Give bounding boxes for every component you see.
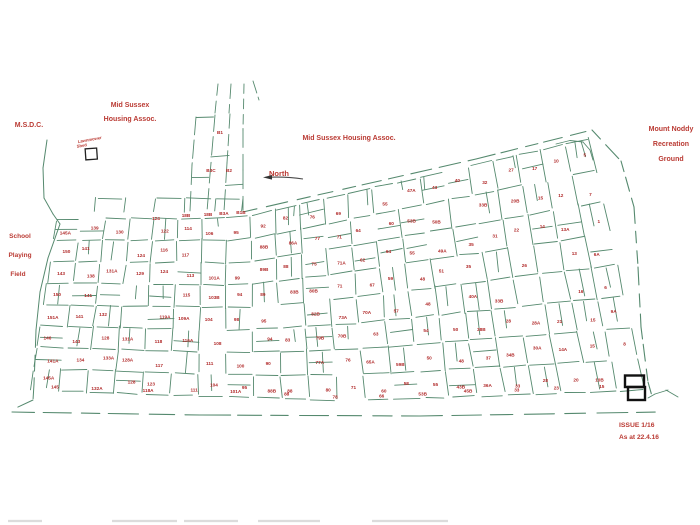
svg-text:55: 55 xyxy=(382,201,388,206)
svg-text:82B: 82B xyxy=(311,312,320,317)
svg-text:53B: 53B xyxy=(407,219,416,224)
svg-text:123: 123 xyxy=(147,382,155,387)
svg-text:28: 28 xyxy=(506,318,512,323)
svg-text:141: 141 xyxy=(82,246,90,251)
svg-text:150: 150 xyxy=(62,249,70,254)
svg-text:131A: 131A xyxy=(106,268,118,273)
svg-text:86A: 86A xyxy=(289,240,298,245)
svg-text:94: 94 xyxy=(267,337,273,342)
svg-text:58: 58 xyxy=(404,381,410,386)
svg-text:88: 88 xyxy=(284,392,290,397)
svg-text:65A: 65A xyxy=(366,360,375,365)
svg-text:B3A: B3A xyxy=(219,211,229,216)
svg-text:124: 124 xyxy=(160,269,168,274)
svg-text:115: 115 xyxy=(183,293,191,298)
svg-text:80B: 80B xyxy=(309,289,318,294)
svg-text:As at 22.4.16: As at 22.4.16 xyxy=(619,434,659,441)
svg-text:146: 146 xyxy=(43,336,51,341)
svg-text:16: 16 xyxy=(578,289,584,294)
svg-text:88B: 88B xyxy=(267,389,276,394)
svg-text:111: 111 xyxy=(190,388,198,393)
svg-text:55: 55 xyxy=(409,250,415,255)
svg-text:64: 64 xyxy=(356,228,362,233)
svg-text:95: 95 xyxy=(242,385,248,390)
svg-text:75: 75 xyxy=(311,262,317,267)
svg-text:20: 20 xyxy=(573,377,579,382)
svg-text:117: 117 xyxy=(155,363,163,368)
svg-text:School: School xyxy=(9,233,31,240)
svg-text:63: 63 xyxy=(373,332,379,337)
svg-text:Mid Sussex: Mid Sussex xyxy=(111,102,150,109)
svg-text:6A: 6A xyxy=(594,252,601,257)
svg-text:22: 22 xyxy=(514,228,520,233)
svg-text:17: 17 xyxy=(532,166,538,171)
svg-text:124: 124 xyxy=(137,253,145,258)
svg-text:40A: 40A xyxy=(469,294,478,299)
svg-text:14A: 14A xyxy=(559,347,568,352)
svg-text:134: 134 xyxy=(76,358,84,363)
svg-text:50: 50 xyxy=(427,355,433,360)
svg-text:15: 15 xyxy=(590,318,596,323)
svg-text:30A: 30A xyxy=(533,346,542,351)
svg-text:Mid Sussex Housing Assoc.: Mid Sussex Housing Assoc. xyxy=(302,135,395,142)
svg-text:13: 13 xyxy=(572,251,578,256)
svg-text:133A: 133A xyxy=(103,356,115,361)
svg-text:89: 89 xyxy=(260,292,266,297)
svg-text:83: 83 xyxy=(285,338,291,343)
svg-text:76: 76 xyxy=(310,215,316,220)
svg-text:128: 128 xyxy=(101,335,109,340)
svg-text:1: 1 xyxy=(597,219,600,224)
svg-text:88: 88 xyxy=(283,264,289,269)
svg-text:103B: 103B xyxy=(208,295,220,300)
svg-text:6: 6 xyxy=(604,285,607,290)
svg-text:15: 15 xyxy=(590,344,596,349)
svg-text:Housing Assoc.: Housing Assoc. xyxy=(104,116,157,123)
svg-text:Mount Noddy: Mount Noddy xyxy=(649,126,694,133)
svg-text:128: 128 xyxy=(128,379,136,384)
svg-text:118A: 118A xyxy=(143,388,155,393)
svg-text:101A: 101A xyxy=(230,389,242,394)
svg-text:131A: 131A xyxy=(122,336,134,341)
svg-text:108: 108 xyxy=(214,341,222,346)
svg-text:95: 95 xyxy=(261,318,267,323)
svg-text:106: 106 xyxy=(205,231,213,236)
svg-text:67: 67 xyxy=(370,283,376,288)
svg-text:23: 23 xyxy=(554,385,560,390)
svg-text:78: 78 xyxy=(332,394,338,399)
svg-text:145A: 145A xyxy=(43,375,55,380)
svg-text:38B: 38B xyxy=(477,327,486,332)
svg-text:129: 129 xyxy=(136,271,144,276)
svg-text:64: 64 xyxy=(386,249,392,254)
svg-text:34B: 34B xyxy=(506,353,515,358)
svg-text:71: 71 xyxy=(351,385,357,390)
svg-text:48: 48 xyxy=(420,276,426,281)
svg-text:60: 60 xyxy=(389,221,395,226)
svg-text:50B: 50B xyxy=(432,219,441,224)
svg-text:28: 28 xyxy=(543,378,549,383)
svg-text:Playing: Playing xyxy=(8,252,31,259)
svg-text:47A: 47A xyxy=(407,188,416,193)
svg-text:B1B: B1B xyxy=(236,210,246,215)
svg-text:15: 15 xyxy=(599,384,605,389)
svg-text:116A: 116A xyxy=(182,338,194,343)
svg-text:111: 111 xyxy=(206,361,214,366)
svg-text:130: 130 xyxy=(116,230,124,235)
svg-text:10: 10 xyxy=(554,158,560,163)
svg-text:139: 139 xyxy=(91,226,99,231)
svg-text:128A: 128A xyxy=(122,358,134,363)
svg-text:Field: Field xyxy=(10,271,25,278)
svg-text:89B: 89B xyxy=(260,267,269,272)
svg-text:B1: B1 xyxy=(217,130,223,135)
svg-text:20B: 20B xyxy=(511,199,520,204)
svg-text:ISSUE 1/16: ISSUE 1/16 xyxy=(619,422,655,429)
svg-text:124: 124 xyxy=(152,216,160,221)
svg-text:71: 71 xyxy=(337,284,343,289)
svg-text:45B: 45B xyxy=(464,388,473,393)
svg-text:77: 77 xyxy=(315,236,321,241)
svg-text:132: 132 xyxy=(99,312,107,317)
svg-text:Ground: Ground xyxy=(658,156,683,163)
svg-text:122: 122 xyxy=(161,229,169,234)
svg-text:31: 31 xyxy=(492,234,498,239)
svg-text:48: 48 xyxy=(459,358,465,363)
svg-text:59: 59 xyxy=(388,276,394,281)
svg-text:18B: 18B xyxy=(182,213,191,218)
svg-text:66: 66 xyxy=(379,394,385,399)
svg-text:132A: 132A xyxy=(91,386,103,391)
svg-text:77A: 77A xyxy=(315,360,324,365)
svg-text:51: 51 xyxy=(439,268,445,273)
svg-text:10B: 10B xyxy=(595,378,604,383)
svg-text:113: 113 xyxy=(187,273,195,278)
svg-text:150: 150 xyxy=(53,292,61,297)
svg-text:82: 82 xyxy=(283,215,289,220)
svg-text:79B: 79B xyxy=(316,336,325,341)
svg-text:28A: 28A xyxy=(532,320,541,325)
svg-text:12: 12 xyxy=(558,193,564,198)
svg-text:59B: 59B xyxy=(396,362,405,367)
svg-text:104: 104 xyxy=(205,317,213,322)
svg-text:5: 5 xyxy=(583,152,586,157)
svg-text:49A: 49A xyxy=(438,248,447,253)
svg-text:143: 143 xyxy=(57,271,65,276)
svg-text:70B: 70B xyxy=(338,334,347,339)
svg-text:18B: 18B xyxy=(204,212,213,217)
svg-text:109A: 109A xyxy=(178,316,190,321)
svg-text:14: 14 xyxy=(540,224,546,229)
svg-text:71: 71 xyxy=(337,234,343,239)
svg-text:13A: 13A xyxy=(561,227,570,232)
svg-text:92: 92 xyxy=(260,223,266,228)
svg-text:36A: 36A xyxy=(483,383,492,388)
svg-text:90: 90 xyxy=(266,361,272,366)
svg-text:151A: 151A xyxy=(47,315,59,320)
svg-text:70A: 70A xyxy=(362,310,371,315)
svg-text:104: 104 xyxy=(210,383,218,388)
svg-text:35: 35 xyxy=(468,242,474,247)
svg-text:116: 116 xyxy=(160,248,168,253)
svg-text:B2: B2 xyxy=(226,168,232,173)
svg-text:69: 69 xyxy=(336,211,342,216)
svg-text:145: 145 xyxy=(51,384,59,389)
svg-text:141: 141 xyxy=(84,293,92,298)
svg-text:57: 57 xyxy=(394,309,400,314)
svg-text:53B: 53B xyxy=(418,392,427,397)
svg-text:101A: 101A xyxy=(209,276,221,281)
svg-text:21: 21 xyxy=(557,319,563,324)
svg-text:54: 54 xyxy=(423,328,429,333)
svg-text:88B: 88B xyxy=(260,245,269,250)
svg-text:33B: 33B xyxy=(495,298,504,303)
svg-text:60: 60 xyxy=(381,388,387,393)
svg-text:80: 80 xyxy=(326,388,332,393)
svg-text:B3C: B3C xyxy=(206,168,216,173)
svg-text:62: 62 xyxy=(360,257,366,262)
svg-text:73A: 73A xyxy=(339,315,348,320)
svg-text:114: 114 xyxy=(184,226,192,231)
svg-text:83B: 83B xyxy=(290,289,299,294)
svg-text:145A: 145A xyxy=(60,231,72,236)
svg-text:Recreation: Recreation xyxy=(653,141,689,148)
svg-text:143: 143 xyxy=(72,339,80,344)
svg-text:118: 118 xyxy=(155,339,163,344)
svg-text:M.S.D.C.: M.S.D.C. xyxy=(15,122,43,129)
svg-text:15: 15 xyxy=(538,196,544,201)
svg-text:7: 7 xyxy=(589,192,592,197)
svg-text:9A: 9A xyxy=(611,309,618,314)
svg-text:141A: 141A xyxy=(47,359,59,364)
svg-text:37: 37 xyxy=(486,356,492,361)
svg-text:100: 100 xyxy=(237,364,245,369)
svg-text:76: 76 xyxy=(345,357,351,362)
svg-text:94: 94 xyxy=(237,292,243,297)
svg-text:40: 40 xyxy=(455,178,461,183)
svg-text:43: 43 xyxy=(432,185,438,190)
svg-text:33B: 33B xyxy=(479,203,488,208)
svg-text:119A: 119A xyxy=(160,315,172,320)
svg-text:95: 95 xyxy=(233,230,239,235)
svg-text:141: 141 xyxy=(76,314,84,319)
svg-text:71A: 71A xyxy=(337,261,346,266)
svg-text:50: 50 xyxy=(453,327,459,332)
svg-text:98: 98 xyxy=(234,317,240,322)
svg-text:26: 26 xyxy=(522,263,528,268)
svg-text:99: 99 xyxy=(235,276,241,281)
svg-text:33: 33 xyxy=(514,388,520,393)
svg-text:8: 8 xyxy=(623,342,626,347)
svg-text:27: 27 xyxy=(508,168,514,173)
svg-text:138: 138 xyxy=(87,273,95,278)
svg-text:35: 35 xyxy=(466,264,472,269)
svg-text:48: 48 xyxy=(425,302,431,307)
svg-text:117: 117 xyxy=(182,253,190,258)
svg-text:32: 32 xyxy=(482,180,488,185)
svg-text:55: 55 xyxy=(433,382,439,387)
